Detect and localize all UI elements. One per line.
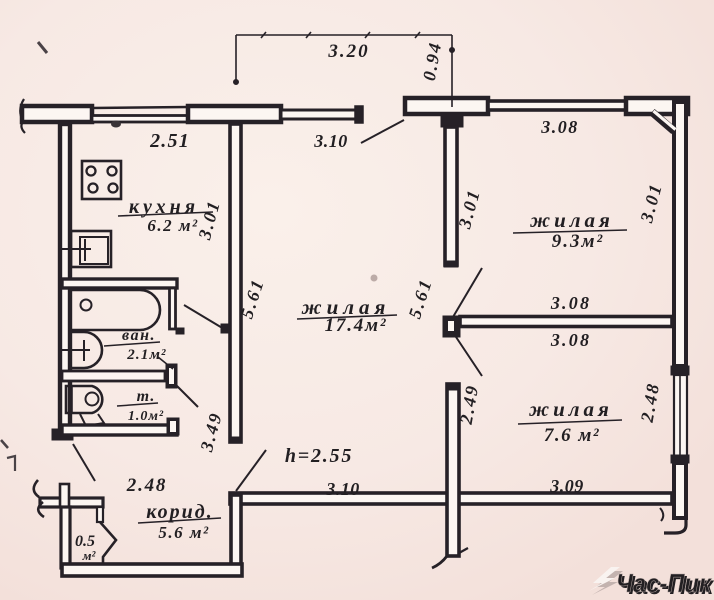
svg-text:3.10: 3.10 xyxy=(325,479,360,499)
svg-text:3.08: 3.08 xyxy=(540,117,579,137)
svg-text:3.20: 3.20 xyxy=(327,41,369,62)
svg-text:7.6 м²: 7.6 м² xyxy=(544,425,600,446)
svg-text:2.1м²: 2.1м² xyxy=(126,347,167,363)
svg-text:3.08: 3.08 xyxy=(550,330,591,350)
svg-text:1.0м²: 1.0м² xyxy=(128,409,164,424)
svg-text:2.51: 2.51 xyxy=(149,130,190,152)
svg-text:3.08: 3.08 xyxy=(550,293,591,313)
svg-text:м²: м² xyxy=(82,548,97,563)
svg-text:h=2.55: h=2.55 xyxy=(285,445,353,467)
svg-text:3.10: 3.10 xyxy=(313,131,348,151)
svg-text:ван.: ван. xyxy=(122,327,156,344)
svg-text:17.4м²: 17.4м² xyxy=(325,315,388,336)
svg-text:жилая: жилая xyxy=(529,208,614,232)
svg-text:жилая: жилая xyxy=(528,397,613,421)
svg-text:3.09: 3.09 xyxy=(549,476,584,496)
svg-text:5.6 м²: 5.6 м² xyxy=(158,523,209,542)
svg-text:Час-Пик: Час-Пик xyxy=(616,568,713,598)
svg-text:т.: т. xyxy=(137,388,156,405)
svg-text:6.2 м²: 6.2 м² xyxy=(147,216,198,235)
svg-text:2.48: 2.48 xyxy=(126,475,167,496)
svg-text:9.3м²: 9.3м² xyxy=(552,231,604,252)
